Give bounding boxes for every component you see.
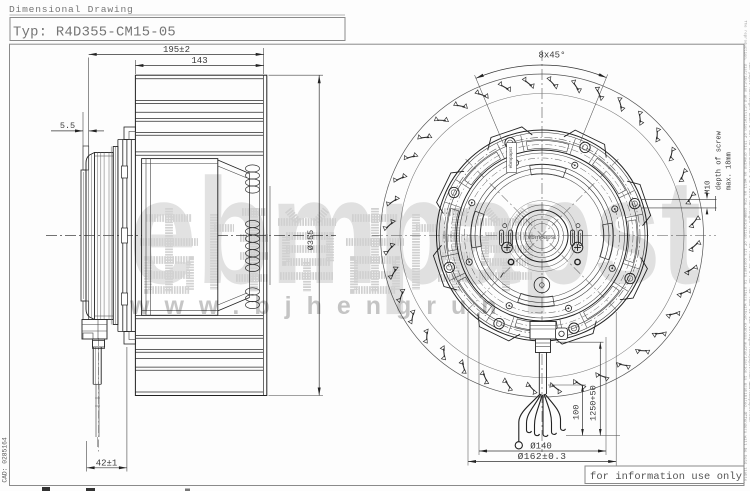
svg-text:depth of screw: depth of screw bbox=[716, 130, 724, 190]
svg-text:The reproduction, distribution: The reproduction, distribution and utili… bbox=[743, 20, 748, 483]
svg-text:Typ: R4D355-CM15-05: Typ: R4D355-CM15-05 bbox=[13, 26, 176, 41]
svg-text:Dimensional Drawing: Dimensional Drawing bbox=[9, 4, 134, 15]
svg-text:1250+50: 1250+50 bbox=[589, 385, 599, 421]
svg-text:8x45°: 8x45° bbox=[538, 51, 565, 61]
svg-text:max. 18mm: max. 18mm bbox=[726, 152, 734, 190]
svg-text:143: 143 bbox=[191, 56, 207, 66]
svg-text:195±2: 195±2 bbox=[163, 45, 190, 55]
svg-text:42±1: 42±1 bbox=[96, 458, 118, 468]
svg-text:Ø140: Ø140 bbox=[530, 442, 552, 452]
svg-text:Ø162±0.3: Ø162±0.3 bbox=[518, 451, 567, 462]
svg-text:100: 100 bbox=[572, 405, 582, 420]
svg-text:5.5: 5.5 bbox=[60, 121, 75, 131]
svg-text:www.bjhengrun: www.bjhengrun bbox=[129, 292, 512, 320]
svg-text:for information use only: for information use only bbox=[590, 471, 742, 483]
svg-text:M10: M10 bbox=[705, 180, 713, 194]
svg-text:CAD: 0285164: CAD: 0285164 bbox=[2, 437, 9, 483]
